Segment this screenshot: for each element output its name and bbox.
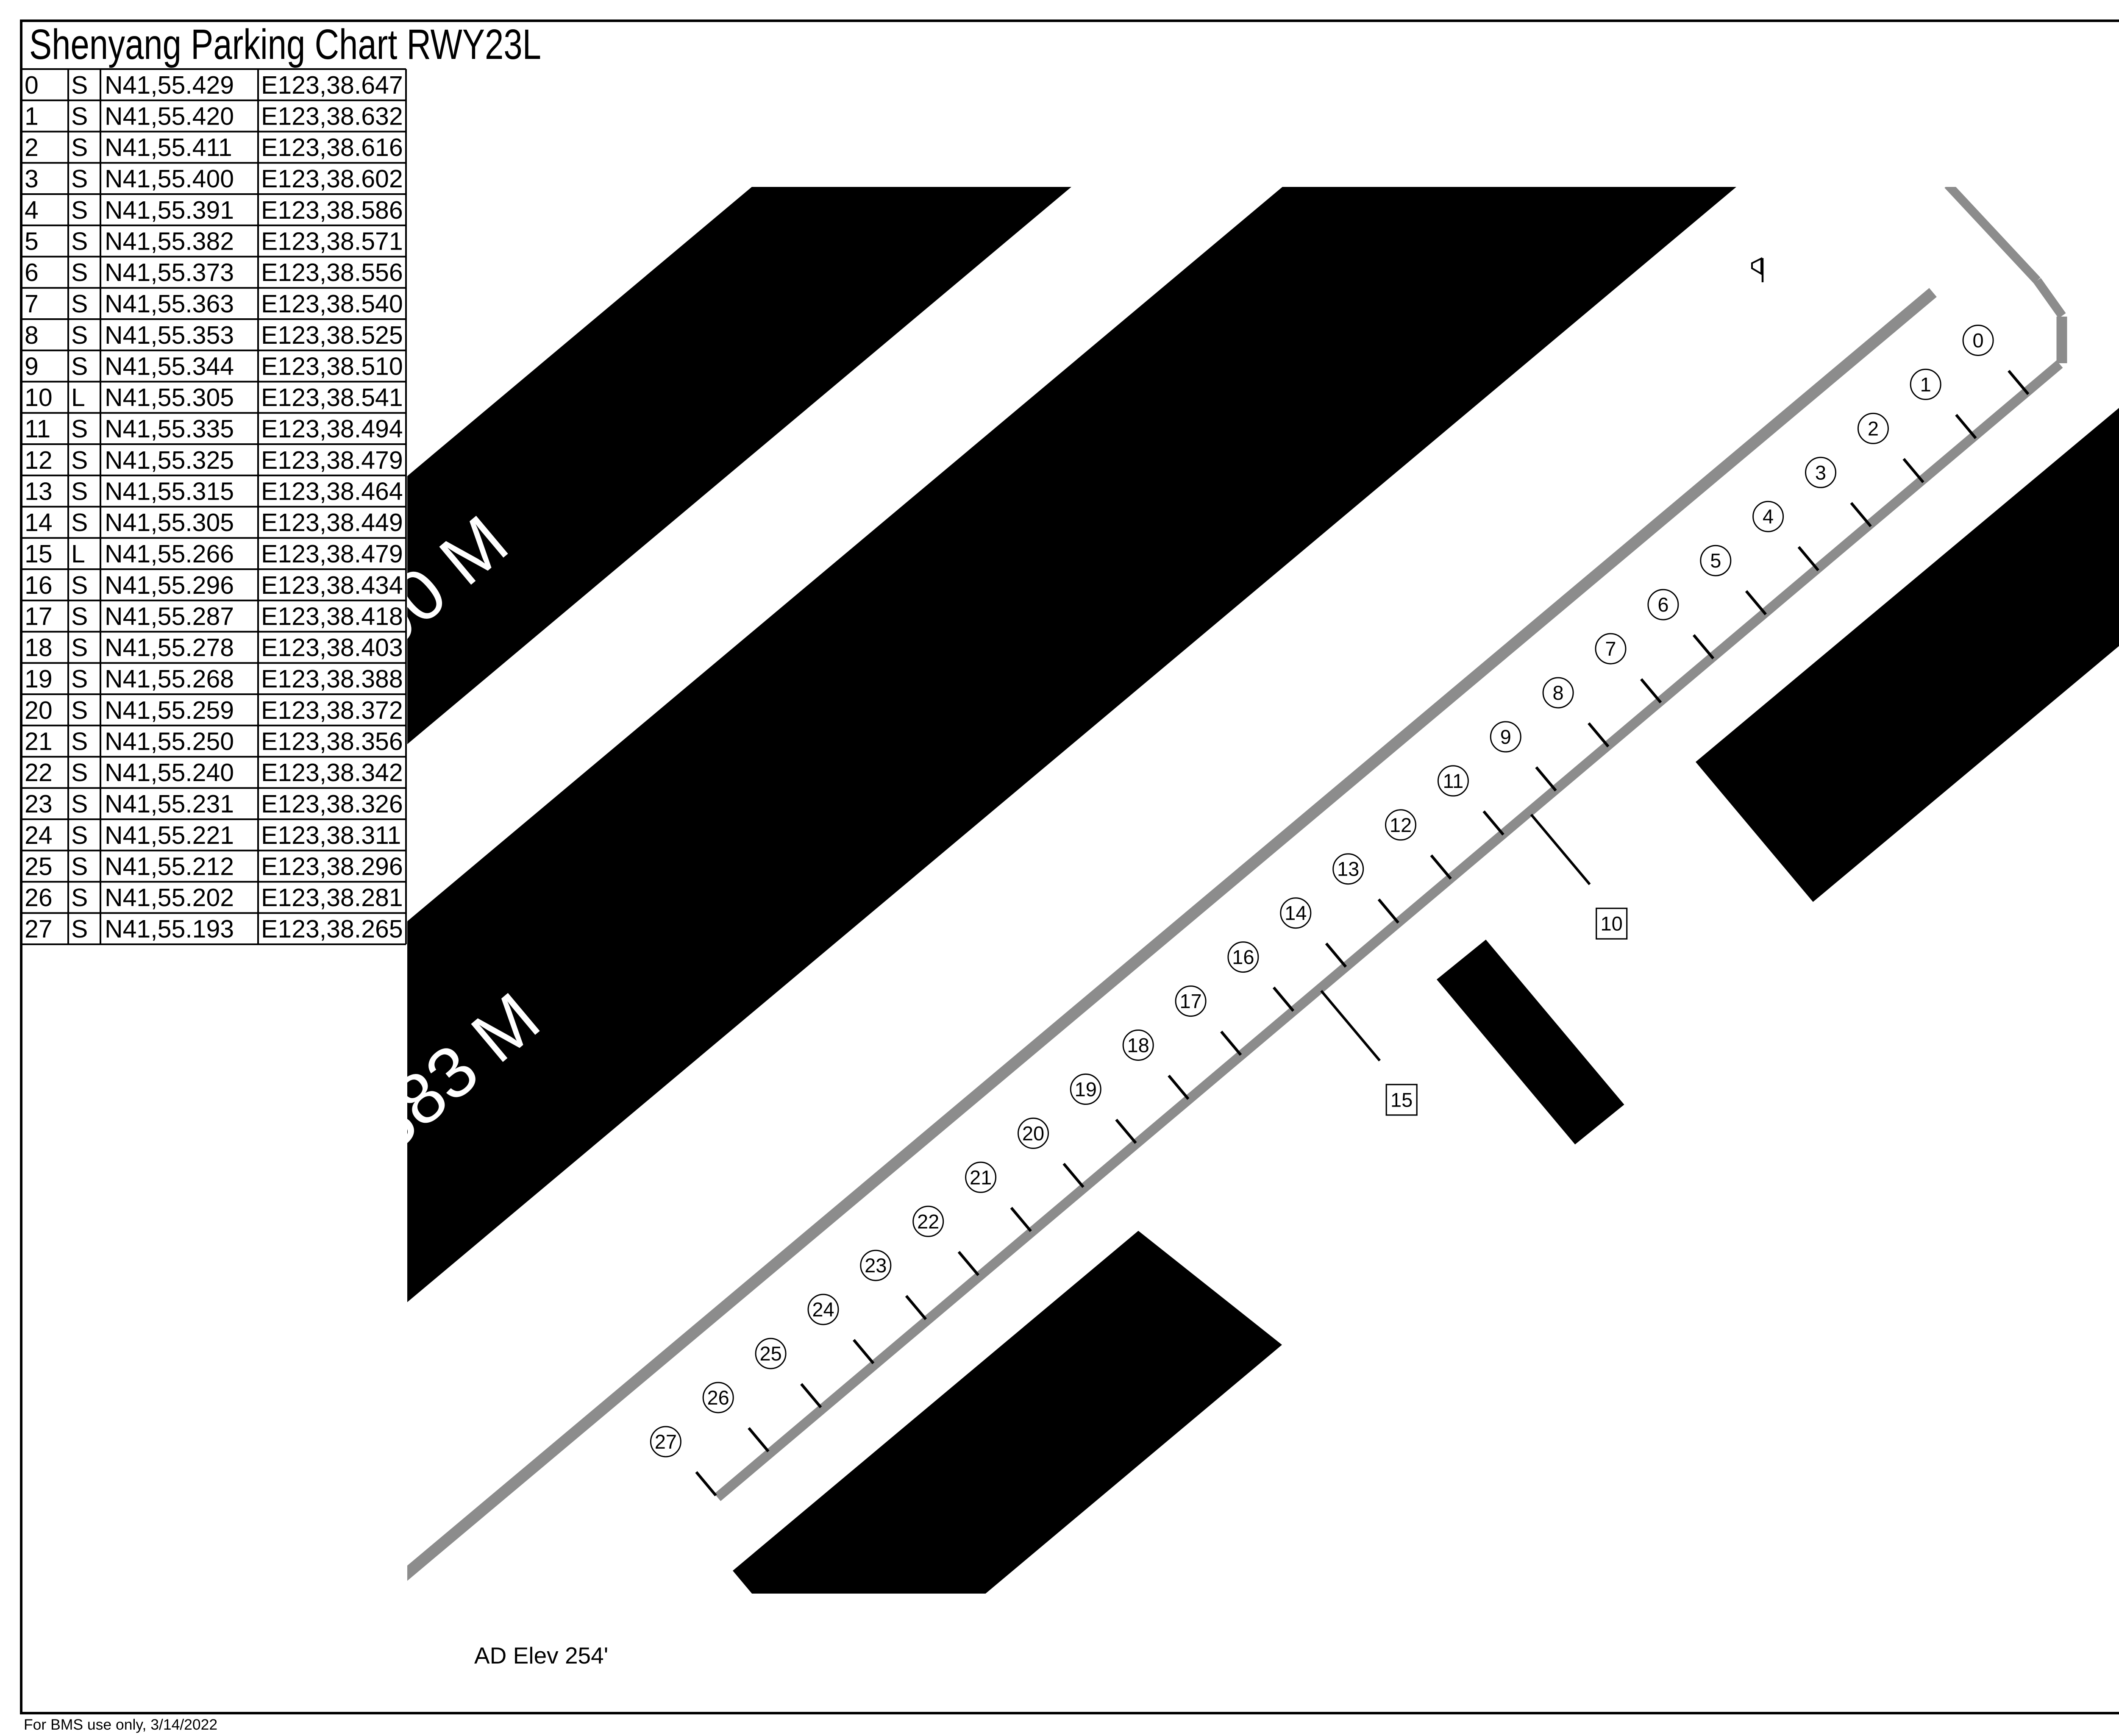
svg-text:N41,55.353: N41,55.353 — [105, 321, 234, 349]
svg-text:S: S — [71, 665, 88, 693]
svg-text:S: S — [71, 353, 88, 381]
svg-text:1: 1 — [25, 103, 39, 131]
svg-text:18: 18 — [25, 634, 53, 662]
svg-text:E123,38.541: E123,38.541 — [261, 384, 403, 412]
svg-text:N41,55.240: N41,55.240 — [105, 759, 234, 787]
svg-text:17: 17 — [25, 603, 53, 631]
svg-text:N41,55.212: N41,55.212 — [105, 853, 234, 881]
svg-text:8: 8 — [1553, 682, 1564, 704]
svg-text:S: S — [71, 290, 88, 318]
svg-text:16: 16 — [1232, 946, 1254, 968]
svg-text:11: 11 — [1443, 770, 1464, 792]
svg-text:S: S — [71, 603, 88, 631]
svg-text:2: 2 — [1868, 417, 1879, 440]
svg-text:15: 15 — [25, 540, 53, 568]
svg-text:9: 9 — [1500, 726, 1511, 748]
svg-text:N41,55.202: N41,55.202 — [105, 884, 234, 912]
svg-text:N41,55.287: N41,55.287 — [105, 603, 234, 631]
svg-text:0: 0 — [1973, 329, 1984, 352]
svg-text:6: 6 — [1657, 593, 1669, 616]
svg-text:S: S — [71, 134, 88, 161]
svg-text:24: 24 — [812, 1298, 834, 1321]
svg-text:16: 16 — [25, 571, 53, 599]
svg-text:1: 1 — [1920, 373, 1931, 395]
svg-text:24: 24 — [25, 821, 53, 849]
svg-text:E123,38.616: E123,38.616 — [261, 134, 403, 161]
svg-text:19: 19 — [1075, 1078, 1097, 1100]
svg-text:N41,55.391: N41,55.391 — [105, 196, 234, 224]
svg-text:27: 27 — [655, 1430, 677, 1453]
svg-text:L: L — [71, 540, 85, 568]
svg-text:N41,55.278: N41,55.278 — [105, 634, 234, 662]
svg-text:E123,38.556: E123,38.556 — [261, 259, 403, 287]
svg-text:E123,38.265: E123,38.265 — [261, 915, 403, 943]
svg-text:S: S — [71, 696, 88, 724]
svg-text:E123,38.632: E123,38.632 — [261, 103, 403, 131]
svg-text:17: 17 — [1179, 990, 1201, 1013]
svg-text:9: 9 — [25, 353, 39, 381]
svg-text:N41,55.335: N41,55.335 — [105, 415, 234, 443]
svg-text:L: L — [71, 384, 85, 412]
svg-text:19: 19 — [25, 665, 53, 693]
svg-text:N41,55.250: N41,55.250 — [105, 728, 234, 756]
svg-text:25: 25 — [759, 1342, 781, 1365]
svg-text:25: 25 — [25, 853, 53, 881]
svg-text:S: S — [71, 759, 88, 787]
svg-text:S: S — [71, 728, 88, 756]
svg-text:18: 18 — [1127, 1034, 1149, 1057]
svg-text:S: S — [71, 853, 88, 881]
svg-text:N41,55.231: N41,55.231 — [105, 790, 234, 818]
svg-text:E123,38.479: E123,38.479 — [261, 446, 403, 474]
svg-text:N41,55.259: N41,55.259 — [105, 696, 234, 724]
svg-text:11: 11 — [25, 415, 50, 443]
svg-text:N41,55.221: N41,55.221 — [105, 821, 234, 849]
svg-text:E123,38.647: E123,38.647 — [261, 71, 403, 99]
svg-text:E123,38.403: E123,38.403 — [261, 634, 403, 662]
svg-text:6: 6 — [25, 259, 39, 287]
svg-text:12: 12 — [1390, 814, 1412, 836]
svg-text:S: S — [71, 103, 88, 131]
svg-text:22: 22 — [917, 1210, 939, 1232]
svg-text:S: S — [71, 509, 88, 537]
svg-text:E123,38.464: E123,38.464 — [261, 478, 403, 506]
svg-text:27: 27 — [25, 915, 53, 943]
svg-text:E123,38.311: E123,38.311 — [261, 821, 401, 849]
svg-text:S: S — [71, 228, 88, 256]
svg-text:E123,38.418: E123,38.418 — [261, 603, 403, 631]
svg-text:S: S — [71, 915, 88, 943]
svg-text:N41,55.344: N41,55.344 — [105, 353, 234, 381]
svg-text:N41,55.382: N41,55.382 — [105, 228, 234, 256]
svg-text:E123,38.540: E123,38.540 — [261, 290, 403, 318]
svg-text:E123,38.494: E123,38.494 — [261, 415, 403, 443]
svg-text:E123,38.281: E123,38.281 — [261, 884, 403, 912]
svg-text:3: 3 — [1815, 461, 1826, 484]
svg-text:10: 10 — [25, 384, 53, 412]
svg-text:7: 7 — [25, 290, 39, 318]
svg-text:N41,55.315: N41,55.315 — [105, 478, 234, 506]
svg-text:S: S — [71, 165, 88, 193]
svg-text:S: S — [71, 446, 88, 474]
svg-text:S: S — [71, 884, 88, 912]
svg-text:S: S — [71, 821, 88, 849]
svg-text:N41,55.363: N41,55.363 — [105, 290, 234, 318]
svg-text:N41,55.193: N41,55.193 — [105, 915, 234, 943]
svg-text:N41,55.305: N41,55.305 — [105, 509, 234, 537]
svg-text:S: S — [71, 478, 88, 506]
svg-text:E123,38.525: E123,38.525 — [261, 321, 403, 349]
svg-text:0: 0 — [25, 71, 39, 99]
svg-text:S: S — [71, 634, 88, 662]
svg-text:Shenyang Parking Chart RWY23L: Shenyang Parking Chart RWY23L — [29, 21, 541, 68]
svg-text:AD Elev 254': AD Elev 254' — [474, 1642, 608, 1669]
svg-text:E123,38.356: E123,38.356 — [261, 728, 403, 756]
svg-text:For BMS use only, 3/14/2022: For BMS use only, 3/14/2022 — [24, 1716, 217, 1733]
svg-text:5: 5 — [25, 228, 39, 256]
svg-text:26: 26 — [707, 1386, 729, 1409]
svg-text:N41,55.305: N41,55.305 — [105, 384, 234, 412]
svg-text:N41,55.268: N41,55.268 — [105, 665, 234, 693]
svg-text:E123,38.434: E123,38.434 — [261, 571, 403, 599]
svg-text:3: 3 — [25, 165, 39, 193]
svg-text:7: 7 — [1605, 637, 1616, 660]
svg-text:4: 4 — [25, 196, 39, 224]
svg-text:N41,55.296: N41,55.296 — [105, 571, 234, 599]
svg-text:S: S — [71, 571, 88, 599]
svg-text:S: S — [71, 415, 88, 443]
svg-text:N41,55.429: N41,55.429 — [105, 71, 234, 99]
svg-text:21: 21 — [25, 728, 53, 756]
svg-text:22: 22 — [25, 759, 53, 787]
svg-text:5: 5 — [1710, 549, 1721, 572]
svg-text:E123,38.449: E123,38.449 — [261, 509, 403, 537]
svg-text:21: 21 — [970, 1166, 992, 1188]
svg-text:E123,38.326: E123,38.326 — [261, 790, 403, 818]
svg-text:12: 12 — [25, 446, 53, 474]
svg-text:8: 8 — [25, 321, 39, 349]
svg-text:S: S — [71, 196, 88, 224]
svg-text:S: S — [71, 71, 88, 99]
svg-text:S: S — [71, 790, 88, 818]
svg-text:20: 20 — [25, 696, 53, 724]
svg-text:E123,38.479: E123,38.479 — [261, 540, 403, 568]
svg-text:E123,38.510: E123,38.510 — [261, 353, 403, 381]
svg-text:N41,55.420: N41,55.420 — [105, 103, 234, 131]
svg-text:26: 26 — [25, 884, 53, 912]
svg-text:N41,55.373: N41,55.373 — [105, 259, 234, 287]
svg-text:E123,38.388: E123,38.388 — [261, 665, 403, 693]
svg-text:E123,38.586: E123,38.586 — [261, 196, 403, 224]
svg-text:E123,38.296: E123,38.296 — [261, 853, 403, 881]
svg-text:23: 23 — [25, 790, 53, 818]
svg-text:14: 14 — [25, 509, 53, 537]
svg-text:15: 15 — [1390, 1088, 1413, 1111]
svg-text:E123,38.342: E123,38.342 — [261, 759, 403, 787]
svg-text:E123,38.571: E123,38.571 — [261, 228, 403, 256]
svg-text:20: 20 — [1022, 1122, 1044, 1144]
svg-text:S: S — [71, 259, 88, 287]
svg-text:4: 4 — [1763, 505, 1774, 528]
svg-text:14: 14 — [1285, 902, 1307, 924]
svg-text:N41,55.266: N41,55.266 — [105, 540, 234, 568]
svg-text:N41,55.411: N41,55.411 — [105, 134, 232, 161]
svg-text:E123,38.372: E123,38.372 — [261, 696, 403, 724]
svg-text:N41,55.400: N41,55.400 — [105, 165, 234, 193]
svg-text:2: 2 — [25, 134, 39, 161]
svg-text:S: S — [71, 321, 88, 349]
svg-text:23: 23 — [865, 1254, 887, 1277]
svg-text:13: 13 — [25, 478, 53, 506]
svg-text:N41,55.325: N41,55.325 — [105, 446, 234, 474]
svg-text:13: 13 — [1337, 858, 1359, 880]
svg-text:E123,38.602: E123,38.602 — [261, 165, 403, 193]
svg-text:10: 10 — [1601, 913, 1623, 935]
